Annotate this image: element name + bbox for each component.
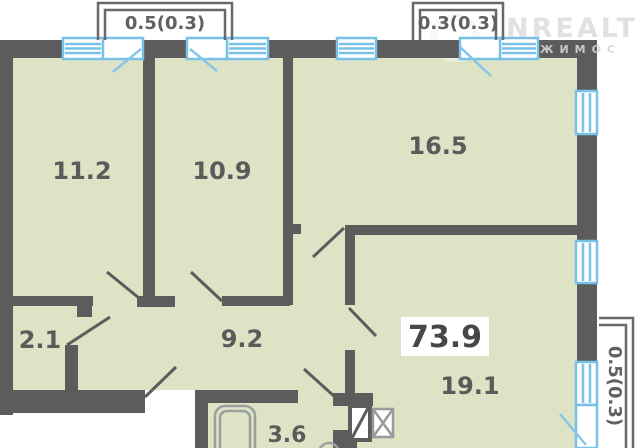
floor-plan: 0.5(0.3) 0.3(0.3) 0.5(0.3) 11.2 10.9 16.… bbox=[0, 0, 636, 448]
vent-box-icon bbox=[373, 409, 393, 437]
watermark-text-secondary: ЖИМОС bbox=[540, 43, 621, 56]
window-icon bbox=[63, 38, 103, 59]
balcony-label: 0.5(0.3) bbox=[604, 346, 625, 426]
window-icon bbox=[576, 362, 597, 405]
balcony-label: 0.3(0.3) bbox=[418, 13, 498, 34]
room-area-label: 11.2 bbox=[52, 157, 111, 185]
watermark-text: NREALT bbox=[506, 13, 636, 44]
total-area-badge: 73.9 bbox=[401, 317, 489, 356]
floor-area bbox=[0, 48, 590, 448]
total-area-label: 73.9 bbox=[408, 320, 482, 355]
balcony-door-icon bbox=[576, 405, 597, 448]
room-area-label: 9.2 bbox=[221, 325, 264, 353]
window-icon bbox=[227, 38, 268, 59]
room-area-label: 10.9 bbox=[192, 157, 251, 185]
duct-shaft-icon bbox=[350, 406, 370, 440]
balcony-door-icon bbox=[187, 38, 227, 59]
window-icon bbox=[576, 91, 597, 134]
room-area-label: 19.1 bbox=[440, 372, 499, 400]
room-area-label: 16.5 bbox=[408, 132, 467, 160]
balcony-door-icon bbox=[460, 38, 500, 59]
balcony-door-icon bbox=[103, 38, 143, 59]
floor-plan-canvas: 0.5(0.3) 0.3(0.3) 0.5(0.3) 11.2 10.9 16.… bbox=[0, 0, 636, 448]
window-icon bbox=[337, 38, 376, 59]
room-area-label: 2.1 bbox=[19, 326, 62, 354]
room-area-label: 3.6 bbox=[268, 423, 307, 448]
window-icon bbox=[576, 241, 597, 283]
balcony-label: 0.5(0.3) bbox=[125, 13, 205, 34]
